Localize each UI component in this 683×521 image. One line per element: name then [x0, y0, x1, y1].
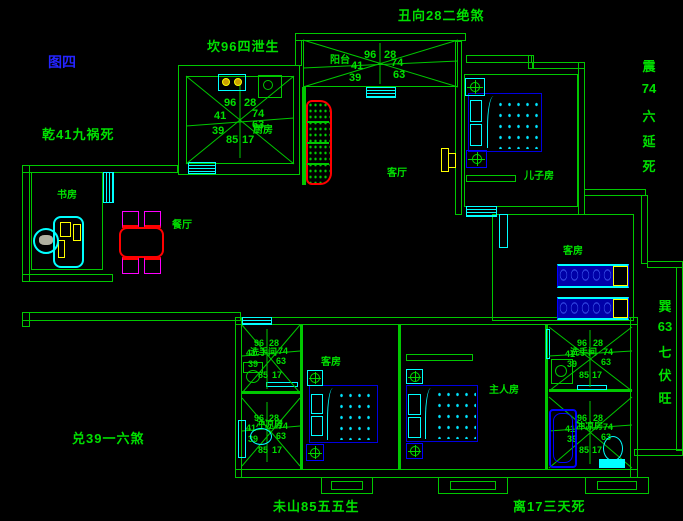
computer-tower: [73, 224, 81, 241]
washbasin-bowl: [555, 365, 567, 377]
compass-num: 85: [226, 134, 238, 146]
annotation-south: 离17三天死: [513, 496, 585, 515]
bed-headboard: [311, 416, 323, 436]
pillow: [613, 266, 628, 286]
room-label-washroom-left: 洗手间: [250, 345, 277, 358]
room-label-son: 儿子房: [524, 167, 554, 182]
wall: [22, 312, 30, 327]
compass-num: 41: [351, 60, 363, 72]
room-label-guest-bottom: 客房: [321, 353, 341, 368]
compass-num: 17: [272, 370, 282, 380]
ceiling-lamp-icon: [466, 150, 487, 168]
annotation-southeast: 七: [654, 342, 676, 361]
annotation-north: 坎96四泄生: [207, 36, 279, 55]
wall: [466, 55, 532, 63]
compass-num: 63: [276, 356, 286, 366]
compass-num: 63: [276, 431, 286, 441]
ceiling-lamp-icon: [306, 444, 324, 461]
wall: [235, 469, 638, 478]
annotation-southeast: 伏: [654, 365, 676, 384]
porch: [597, 481, 637, 490]
floor-plan-canvas: 96 28 41 74 39 63 85 17 96 28 41 74 39 6…: [0, 0, 683, 521]
room-label-master: 主人房: [489, 381, 519, 396]
blanket-fold: [327, 388, 337, 440]
wall: [634, 449, 683, 456]
ceiling-lamp-icon: [406, 369, 423, 384]
toilet-base: [599, 459, 625, 468]
tv-screen: [448, 153, 456, 168]
bed-headboard: [470, 124, 482, 146]
annotation-west: 兑39一六煞: [72, 428, 144, 447]
pillow: [613, 299, 628, 318]
toilet-bowl: [246, 370, 260, 383]
ceiling-lamp-icon: [307, 370, 323, 386]
window-washroom-left: [242, 317, 272, 325]
compass-num: 63: [601, 357, 611, 367]
stove-burner: [234, 78, 242, 86]
wall: [641, 195, 648, 264]
bed-headboard: [311, 394, 323, 414]
wall: [295, 40, 302, 66]
dining-chair: [144, 257, 161, 274]
room-label-living: 客厅: [387, 164, 407, 179]
blanket-fold: [425, 388, 435, 439]
compass-num: 17: [272, 445, 282, 455]
compass-num: 39: [349, 72, 361, 84]
keyboard: [58, 240, 65, 258]
porch: [331, 481, 363, 490]
compass-num: 85: [579, 445, 589, 455]
shelf-son: [466, 175, 516, 182]
shelf-master: [406, 354, 473, 361]
stove-burner: [222, 78, 230, 86]
dining-table: [119, 227, 164, 258]
room-label-shower-left: 冲凉房: [256, 417, 283, 430]
annotation-east: 74: [638, 81, 660, 96]
bed-headboard: [470, 100, 482, 122]
window-study: [103, 172, 114, 203]
porch: [450, 481, 496, 490]
compass-num: 74: [391, 57, 404, 69]
compass-num: 74: [603, 422, 613, 432]
compass-num: 63: [393, 69, 405, 81]
dining-chair: [122, 257, 139, 274]
compass-num: 74: [278, 346, 288, 356]
kitchen-sink-basin: [263, 80, 273, 90]
compass-num: 85: [258, 445, 268, 455]
wall: [584, 189, 646, 196]
toilet-bowl: [250, 428, 272, 445]
compass-num: 74: [603, 347, 613, 357]
compass-num: 85: [579, 370, 589, 380]
annotation-east: 震: [638, 56, 660, 75]
annotation-mountain: 未山85五五生: [273, 496, 359, 515]
room-label-guest-right: 客房: [563, 242, 583, 257]
room-label-washroom-right: 洗手间: [570, 345, 597, 358]
door-guest-room-right: [499, 214, 508, 248]
bed-headboard: [408, 417, 421, 438]
compass-balcony: 96 28 41 74 39 63: [303, 40, 458, 87]
toilet-bowl: [603, 436, 623, 461]
dining-chair: [144, 211, 161, 228]
figure-label: 图四: [48, 52, 76, 72]
ceiling-lamp-icon: [406, 443, 423, 459]
wall: [398, 325, 401, 469]
toilet-tank: [238, 420, 246, 458]
room-label-kitchen: 厨房: [253, 121, 273, 136]
compass-num: 96: [364, 49, 376, 61]
wall: [676, 267, 683, 451]
bed-mattress: [496, 99, 540, 149]
planter-divider: [307, 121, 329, 123]
annotation-southeast: 巽: [654, 296, 676, 315]
room-label-shower-right: 冲凉房: [576, 419, 603, 432]
compass-num: 41: [214, 110, 226, 122]
wall: [22, 274, 113, 282]
bed-mattress: [435, 389, 476, 439]
chair-seat: [39, 235, 53, 245]
window-son-room: [466, 206, 497, 217]
compass-num: 17: [592, 370, 602, 380]
annotation-southeast: 63: [654, 319, 676, 334]
planter-divider: [307, 142, 329, 144]
wall: [22, 165, 30, 282]
room-label-dining: 餐厅: [172, 216, 192, 231]
window-balcony: [366, 87, 396, 98]
compass-num: 39: [212, 125, 224, 137]
bed-mattress: [337, 390, 376, 440]
annotation-northwest: 乾41九祸死: [42, 124, 114, 143]
compass-num: 17: [592, 445, 602, 455]
planter-divider: [307, 163, 329, 165]
compass-num: 96: [224, 97, 236, 109]
wall: [300, 325, 303, 469]
room-label-balcony: 阳台: [330, 51, 350, 66]
annotation-southeast: 旺: [654, 388, 676, 407]
bed-headboard: [408, 394, 421, 415]
bathtub-inner: [553, 413, 573, 463]
ceiling-lamp-icon: [465, 78, 485, 96]
wall-long: [22, 312, 241, 321]
room-label-study: 书房: [57, 186, 77, 201]
annotation-facing: 丑向28二绝煞: [398, 5, 484, 24]
annotation-east: 延: [638, 131, 660, 150]
dining-chair: [122, 211, 139, 228]
annotation-east: 六: [638, 106, 660, 125]
annotation-east: 死: [638, 156, 660, 175]
computer-monitor: [60, 222, 71, 237]
